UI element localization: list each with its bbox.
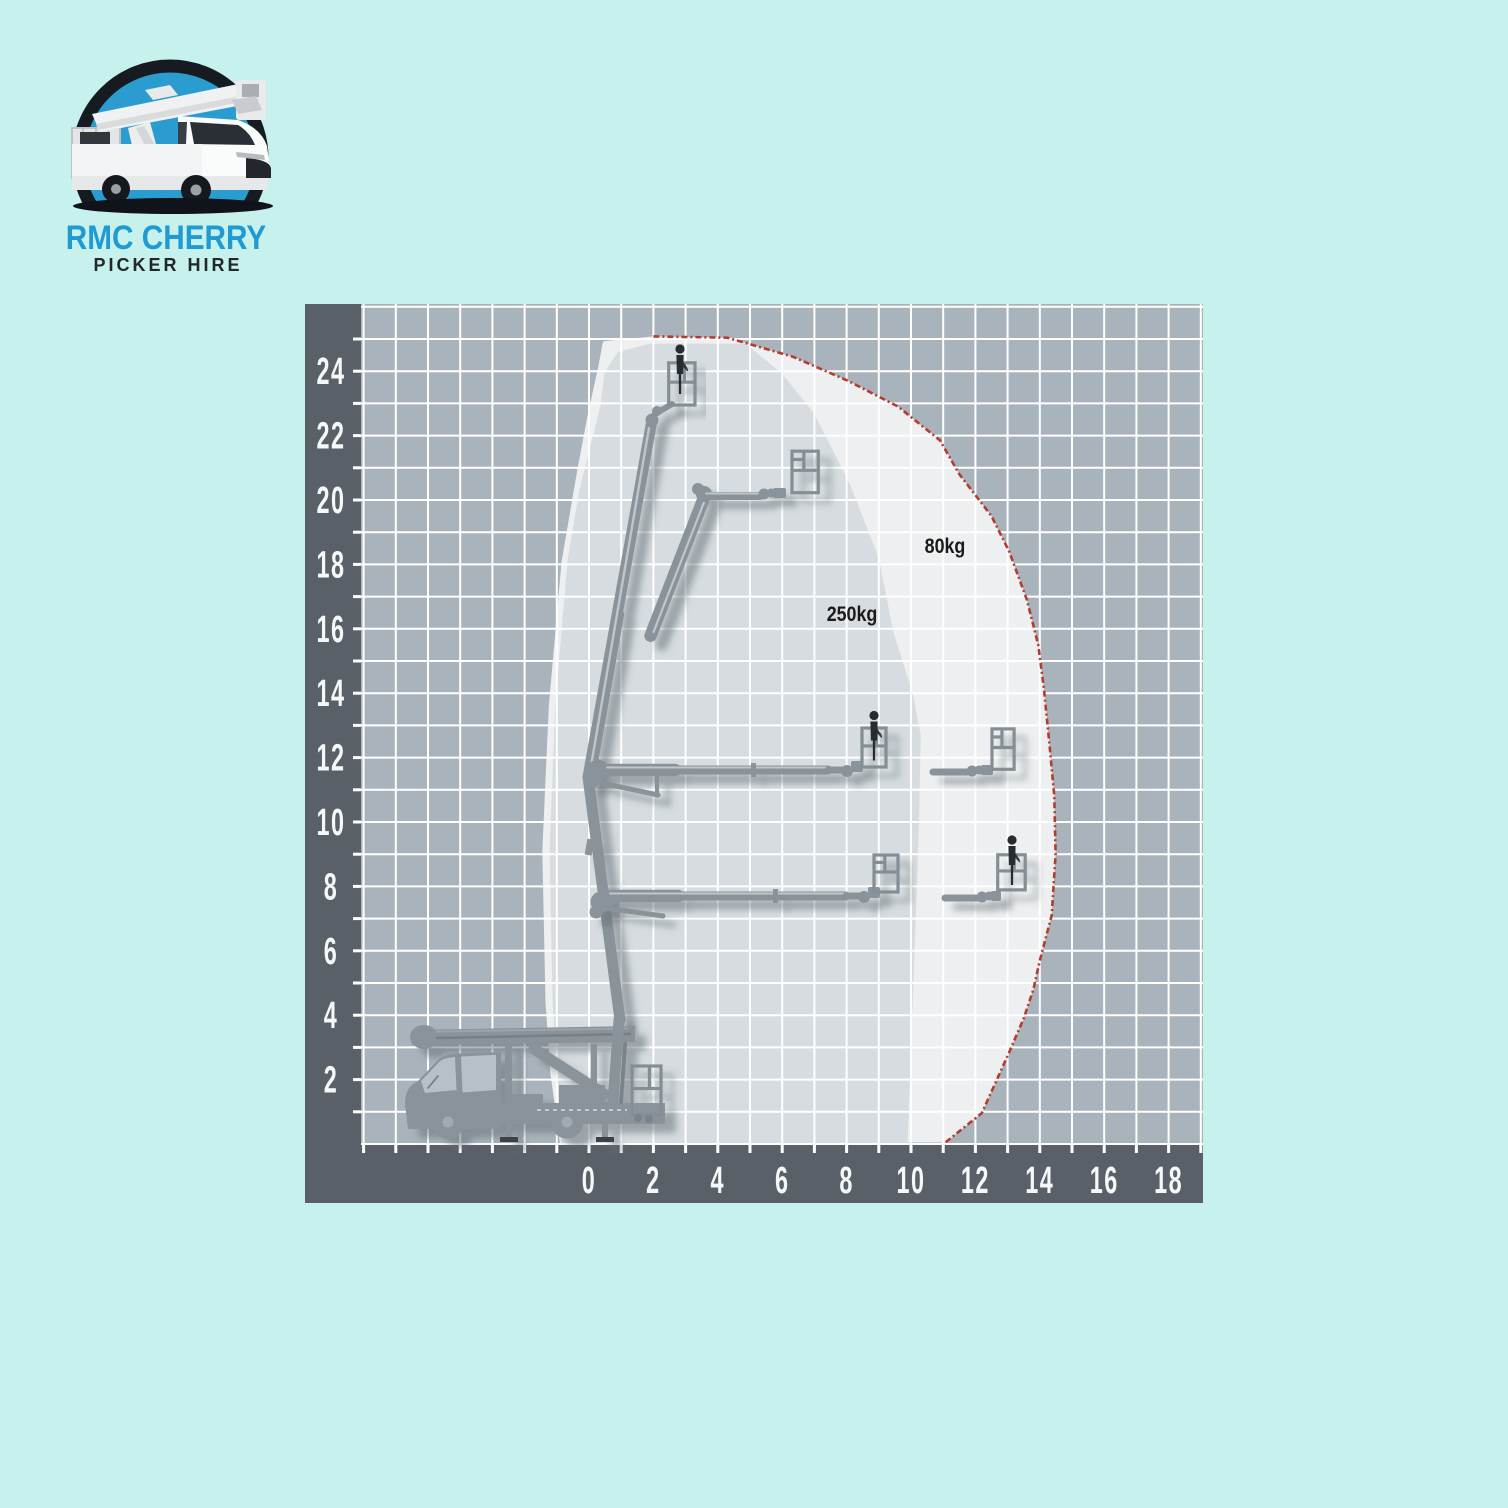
svg-text:2: 2 (324, 1059, 339, 1101)
svg-text:6: 6 (324, 930, 339, 972)
svg-text:10: 10 (896, 1159, 925, 1201)
svg-text:14: 14 (1025, 1159, 1054, 1201)
svg-text:250kg: 250kg (827, 603, 878, 627)
svg-text:24: 24 (316, 351, 345, 393)
svg-text:RMC CHERRY: RMC CHERRY (66, 218, 266, 256)
svg-text:8: 8 (839, 1159, 854, 1201)
svg-text:18: 18 (1154, 1159, 1183, 1201)
svg-text:22: 22 (316, 415, 345, 457)
svg-text:12: 12 (961, 1159, 990, 1201)
svg-text:6: 6 (775, 1159, 790, 1201)
svg-text:12: 12 (316, 737, 345, 779)
svg-text:80kg: 80kg (925, 535, 966, 559)
svg-text:4: 4 (324, 995, 339, 1037)
svg-text:PICKER HIRE: PICKER HIRE (93, 255, 242, 275)
svg-text:16: 16 (316, 608, 345, 650)
svg-text:20: 20 (316, 479, 345, 521)
svg-text:2: 2 (646, 1159, 661, 1201)
svg-text:8: 8 (324, 866, 339, 908)
svg-text:16: 16 (1090, 1159, 1119, 1201)
svg-text:0: 0 (582, 1159, 597, 1201)
svg-text:18: 18 (316, 544, 345, 586)
svg-text:14: 14 (316, 673, 345, 715)
svg-text:10: 10 (316, 801, 345, 843)
svg-text:4: 4 (711, 1159, 726, 1201)
